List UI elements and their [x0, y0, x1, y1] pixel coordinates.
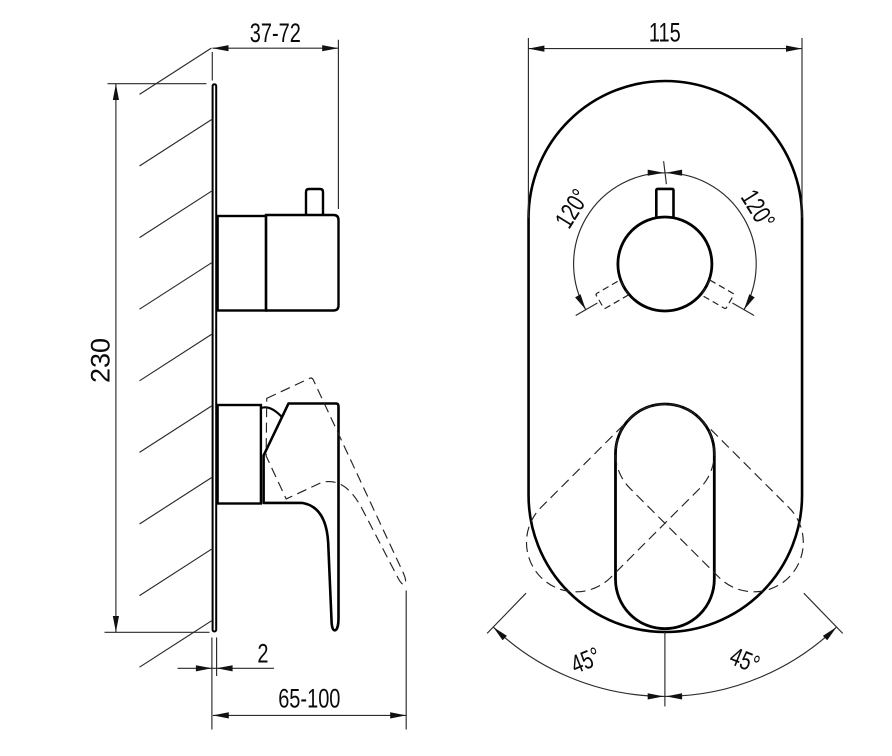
svg-text:65-100: 65-100 — [278, 684, 340, 715]
svg-text:37-72: 37-72 — [250, 18, 301, 49]
svg-text:2: 2 — [257, 638, 268, 669]
svg-text:45°: 45° — [726, 641, 764, 679]
svg-text:120°: 120° — [549, 184, 595, 233]
svg-text:230: 230 — [86, 338, 116, 383]
svg-text:120°: 120° — [735, 184, 781, 233]
svg-text:115: 115 — [649, 18, 681, 49]
svg-text:45°: 45° — [566, 641, 604, 679]
